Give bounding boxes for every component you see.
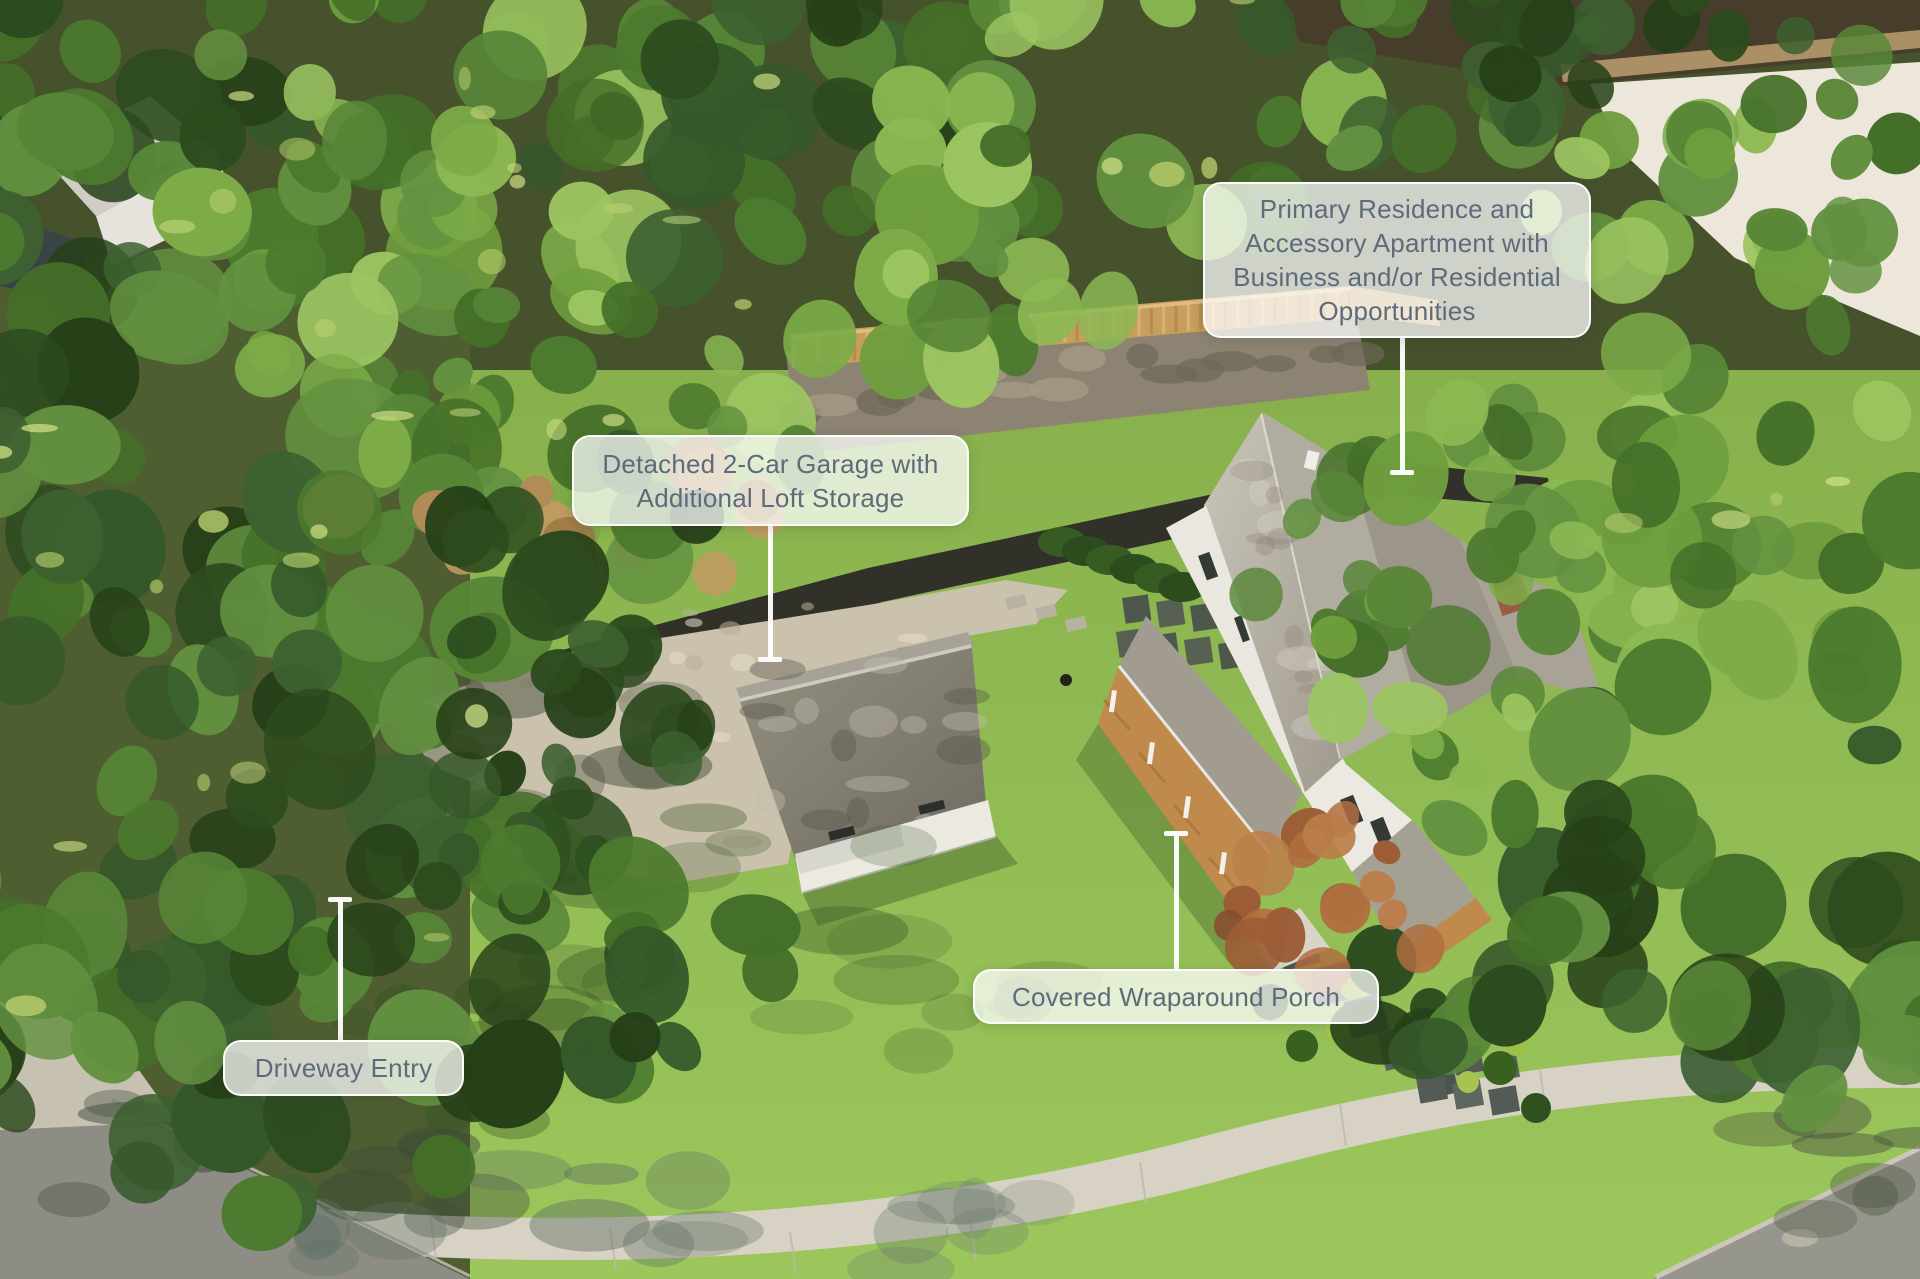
- leader-line-detached-garage: [768, 524, 773, 660]
- callout-detached-garage: Detached 2-Car Garage with Additional Lo…: [572, 435, 969, 526]
- leader-cap-driveway-entry: [328, 897, 352, 902]
- leader-cap-wraparound-porch: [1164, 831, 1188, 836]
- aerial-property-photo: Primary Residence and Accessory Apartmen…: [0, 0, 1920, 1279]
- callout-primary-residence: Primary Residence and Accessory Apartmen…: [1203, 182, 1591, 338]
- leader-cap-detached-garage: [758, 657, 782, 662]
- leader-line-wraparound-porch: [1174, 833, 1179, 971]
- callout-driveway-entry: Driveway Entry: [223, 1040, 464, 1096]
- leader-cap-primary-residence: [1390, 470, 1414, 475]
- callout-wraparound-porch: Covered Wraparound Porch: [973, 969, 1379, 1024]
- leader-line-driveway-entry: [338, 899, 343, 1042]
- leader-line-primary-residence: [1400, 336, 1405, 473]
